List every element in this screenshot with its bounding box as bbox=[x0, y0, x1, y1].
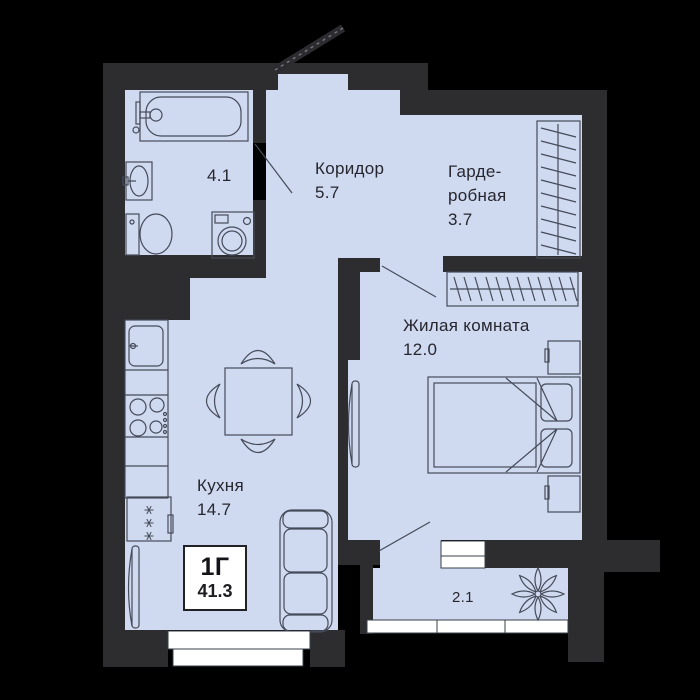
room-name: Жилая комната bbox=[403, 314, 530, 338]
entrance-door bbox=[275, 28, 343, 70]
fixtures-layer bbox=[0, 0, 700, 700]
plant-icon bbox=[512, 568, 564, 620]
stove bbox=[130, 398, 167, 436]
closet-rack-horizontal bbox=[447, 272, 578, 306]
kitchen-counter bbox=[125, 320, 168, 498]
room-area: 5.7 bbox=[315, 181, 384, 205]
room-area: 3.7 bbox=[448, 208, 507, 232]
balcony-door-window bbox=[441, 541, 485, 568]
unit-type: 1Г bbox=[200, 554, 229, 580]
blanket-fold bbox=[506, 378, 557, 472]
kitchen-window bbox=[168, 631, 310, 666]
label-living-room: Жилая комната 12.0 bbox=[403, 314, 530, 362]
kitchen-sink bbox=[129, 326, 163, 366]
pillow bbox=[541, 429, 572, 467]
pillow bbox=[541, 384, 572, 421]
toilet bbox=[126, 214, 172, 255]
balcony-glazing bbox=[367, 620, 568, 633]
dining-table bbox=[225, 368, 292, 435]
closet-rack-vertical bbox=[537, 121, 580, 258]
label-kitchen: Кухня 14.7 bbox=[197, 474, 244, 522]
bathroom-sink bbox=[123, 162, 152, 200]
dining-chair bbox=[207, 351, 311, 453]
label-bathroom-area: 4.1 bbox=[207, 164, 232, 188]
nightstand-top bbox=[545, 341, 580, 374]
bed bbox=[428, 377, 580, 473]
snowflake-icon bbox=[145, 506, 154, 540]
room-name: Гарде- bbox=[448, 160, 507, 184]
tv-panel bbox=[349, 381, 360, 467]
living-room-door-arc bbox=[382, 266, 436, 297]
unit-info-box: 1Г 41.3 bbox=[183, 545, 247, 611]
sofa bbox=[280, 510, 332, 632]
room-area: 12.0 bbox=[403, 338, 530, 362]
room-name: робная bbox=[448, 184, 507, 208]
room-name: Кухня bbox=[197, 474, 244, 498]
room-area: 14.7 bbox=[197, 498, 244, 522]
label-balcony-area: 2.1 bbox=[452, 586, 474, 610]
room-name: Коридор bbox=[315, 157, 384, 181]
fridge bbox=[127, 497, 173, 541]
label-wardrobe: Гарде- робная 3.7 bbox=[448, 160, 507, 232]
label-corridor: Коридор 5.7 bbox=[315, 157, 384, 205]
washing-machine bbox=[212, 212, 254, 258]
floor-plan: 4.1 Коридор 5.7 Гарде- робная 3.7 Жилая … bbox=[0, 0, 700, 700]
nightstand-bottom bbox=[545, 476, 580, 512]
balcony-door-arc bbox=[379, 522, 430, 551]
bathtub bbox=[133, 92, 248, 141]
bathroom-door-arc bbox=[255, 144, 292, 193]
kitchen-radiator-panel bbox=[129, 546, 140, 628]
unit-total-area: 41.3 bbox=[197, 580, 232, 602]
